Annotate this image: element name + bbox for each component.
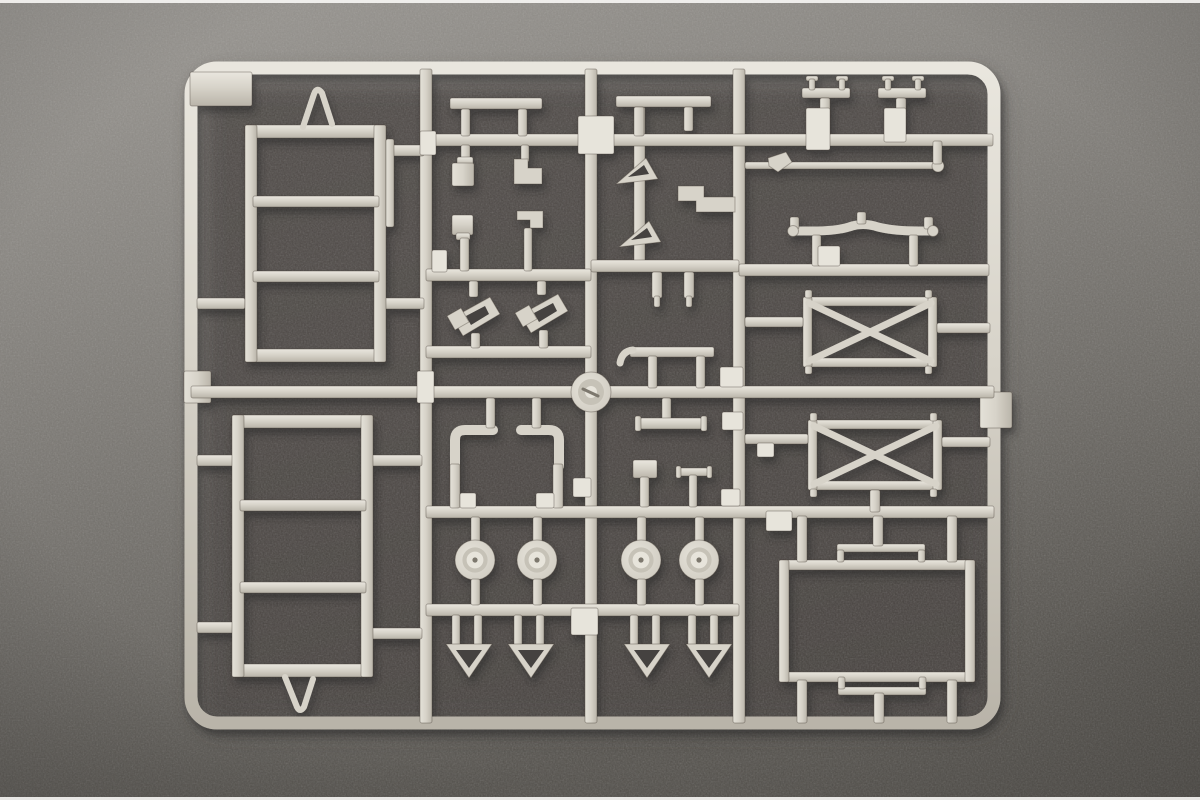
box-top [779,560,975,570]
gate-pad-v3-mid [720,367,743,387]
gate-pad-v3-low [722,412,743,430]
lblock-b-stem [524,228,532,271]
runner-h2-center [591,260,739,272]
link-ladder1-right-bot [384,298,424,309]
link-ladder2-left-bot [197,622,235,633]
beam-part-midleft-leg2 [518,109,527,136]
axle-knob2 [857,212,866,224]
box-handle-top-leg2 [918,550,925,562]
xframe2-nub4 [930,489,937,497]
xframe1-top [803,297,937,306]
gate-pad-v1-h1 [420,131,436,155]
wheel4-stem-bot [695,579,704,605]
xframe1-nub1 [805,290,812,298]
link-ladder2-right-top [370,455,422,466]
box-handle-top-leg1 [837,550,844,562]
xframe1-nub4 [925,366,932,374]
hook-beam1-pin2 [839,79,845,90]
box-stub4 [797,680,807,723]
box-right [965,560,975,682]
gate-pad-v2-h1 [578,116,614,154]
plug-b-block [452,215,473,235]
photo-edge-top [0,0,1200,3]
plug-a-block [452,163,474,186]
box-stub3 [873,516,883,546]
tpin-cap2 [707,466,712,478]
xframe1-nub2 [925,290,932,298]
hook-beam1-pin1 [809,79,815,90]
wheel2 [517,540,557,580]
link-ladder1-left [197,298,245,309]
plug-b-stem [460,238,469,271]
pin1-tip [654,296,660,307]
wheel4-stem-top [695,517,704,542]
hook-beam2-gate [884,108,906,142]
runner-h2-midleft [426,269,591,281]
towhook4-stem1 [688,615,696,646]
ladder1-rung2 [253,271,379,282]
xframe2-nub1 [810,413,817,421]
axle-leg2 [909,235,918,266]
xframe1-link-left [745,317,803,327]
gate-pad-v1-h2 [432,250,447,272]
xframe2-link-left [745,434,808,444]
ladder2-rung2 [240,582,366,593]
wheel3 [621,540,661,580]
xframe2-link-pad [757,443,774,457]
wheel2-stem-top [533,517,542,542]
ladder1-top [245,125,386,138]
link-ladder2-right-bot [370,628,422,639]
box-bottom [779,672,975,682]
tie-rod-stub [933,141,942,164]
towhook3-stem1 [630,615,638,646]
towhook1-stem2 [474,615,482,646]
xframe2-top [808,420,942,429]
gate-pad-v3-h4 [721,489,740,506]
xframe2-bottom [808,481,942,490]
towhook3-stem2 [652,615,660,646]
ladder1-left-rail [245,125,257,362]
towhook1-stem1 [452,615,460,646]
wheel3-stem-top [637,517,646,542]
ladder1-rail-strip [386,139,394,227]
ladder2-top [232,415,373,428]
box-stub5 [947,680,957,723]
block-part [633,460,657,478]
axle-cap2 [928,226,939,237]
xframe2-nub3 [810,489,817,497]
beam-part-center [616,96,711,107]
bench-leg1 [648,356,657,388]
ladder1-bottom [245,349,386,362]
box-handle-bot-leg2 [919,677,926,689]
ladder2-bottom [232,664,373,677]
pin2 [684,272,694,298]
hook-beam2-pin1 [885,79,891,90]
sprue-photograph [0,0,1200,800]
box-stub6 [874,693,884,723]
wheel3-stem-bot [637,579,646,605]
ladder2-right-rail [361,415,373,677]
xframe2-link-right [942,437,990,447]
runner-h3-midleft [426,346,591,358]
beam-part-midleft [450,98,542,109]
box-stub1 [797,516,807,562]
beam-part-midleft-leg1 [461,109,470,136]
beam-part-center-leg2 [684,107,693,131]
gate-pad-v2-h4 [573,478,591,497]
tee-bar [640,418,702,429]
towhook4-stem2 [710,615,718,646]
ladder1-rung1 [253,196,379,207]
hook-beam2-pin2 [915,79,921,90]
ladder2-left-rail [232,415,244,677]
tee-cap2 [701,416,707,431]
wheel1-stem-top [471,517,480,542]
ladder1-right-rail [374,125,386,362]
wheel1 [455,540,495,580]
wheel4 [679,540,719,580]
nozzle2-stem-top [537,281,546,295]
block-part-stem [640,477,649,507]
nozzle2-stem-bot [539,330,548,348]
gate-pad-pipe2 [536,493,554,508]
towhook2-stem1 [514,615,522,646]
wheel1-stem-bot [471,579,480,605]
pin2-tip [686,296,692,307]
pin1 [652,272,662,298]
ladder2-rung1 [240,500,366,511]
runner-h1 [426,134,993,146]
link-ladder2-left-top [197,455,235,466]
sprue-photo-canvas [0,0,1200,800]
xframe1-nub3 [805,366,812,374]
towhook2-stem2 [536,615,544,646]
axle-cap1 [788,226,799,237]
box-left [779,560,789,682]
runner-h2-right [739,264,989,276]
hook-beam1-gate [806,108,830,150]
xframe2-stub-down [870,490,880,512]
nozzle1-stem-bot [471,333,480,348]
xframe1-bottom [803,358,937,367]
wheel2-stem-bot [533,579,542,605]
xframe1-link-right [937,323,990,333]
corner-tab [190,72,252,106]
mould-hub [571,372,611,412]
bench-leg2 [696,356,705,388]
gate-pad-v1-mid [417,371,434,403]
pipe1-stem [450,464,460,508]
runner-h4 [426,506,994,518]
box-handle-bot-leg1 [838,677,845,689]
tpin-cap1 [676,466,681,478]
axle-gate [818,246,840,266]
gate-pad-v2-h5 [571,608,598,635]
beam-part-center-leg1 [634,107,644,136]
tpin-stem [689,475,697,507]
pipe1-stub [486,398,495,428]
box-stub2 [947,516,957,562]
box-gate [766,511,792,531]
tee-cap1 [635,416,641,431]
gate-pad-pipe1 [460,493,476,508]
nozzle1-stem-top [469,281,478,297]
pipe2-stub [532,398,541,428]
xframe2-nub2 [930,413,937,421]
